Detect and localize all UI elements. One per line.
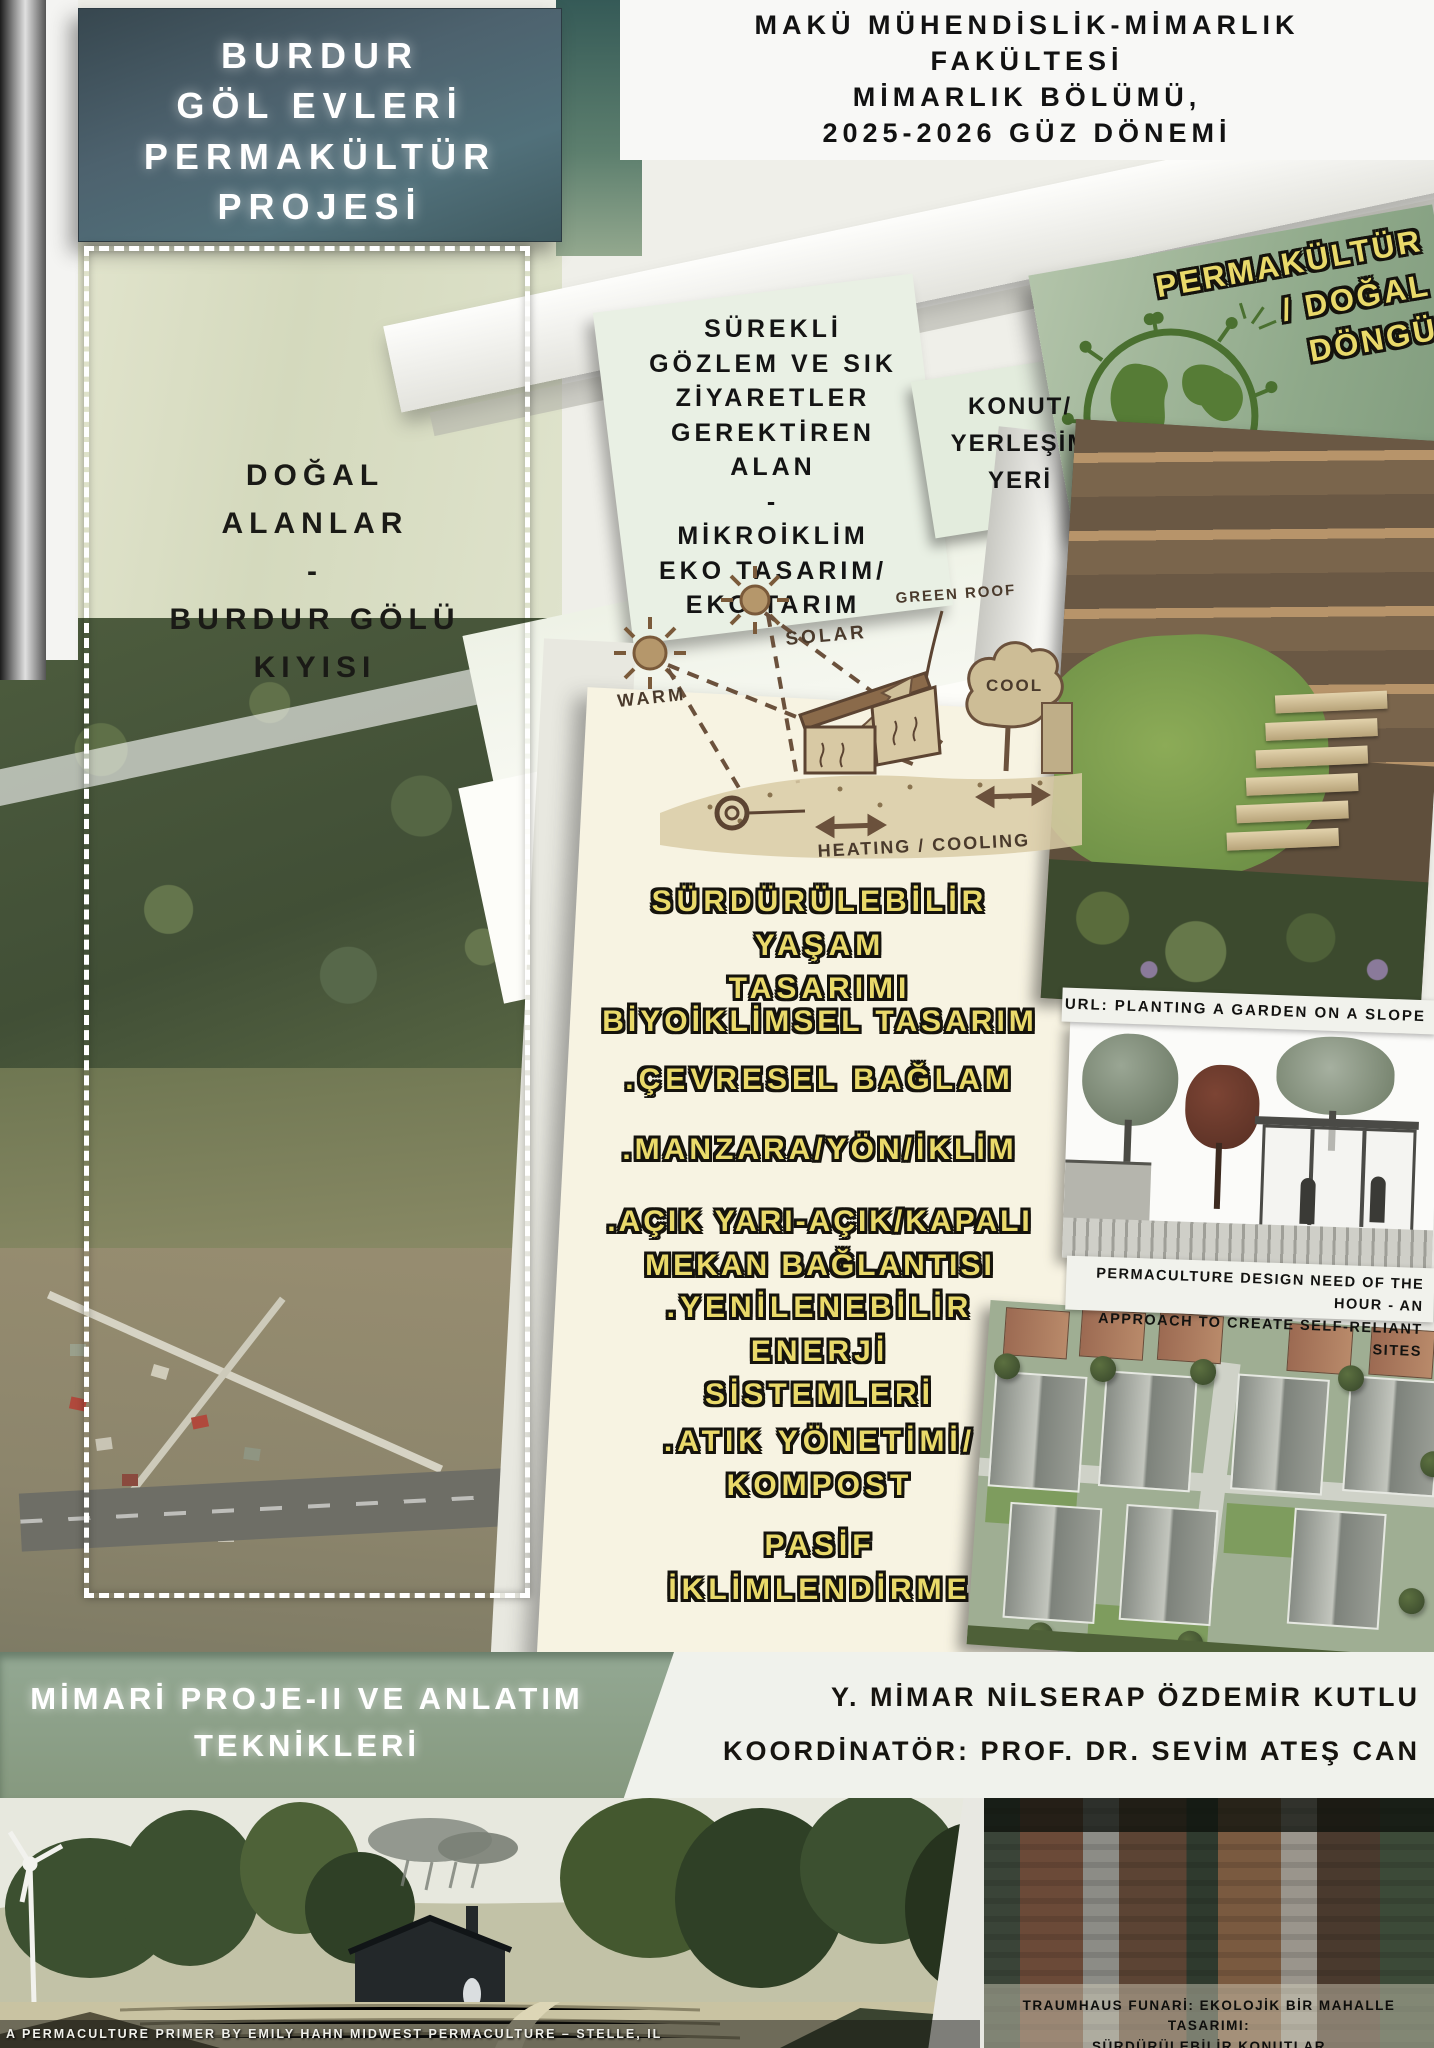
poster-root: BURDUR GÖL EVLERİ PERMAKÜLTÜR PROJESİ MA… [0,0,1434,2048]
course-title: MİMARİ PROJE-II VE ANLATIM TEKNİKLERİ [14,1676,600,1769]
masterplan-house [1230,1373,1330,1495]
principle-item: PASİF İKLİMLENDİRME [580,1524,1060,1611]
render-top-shadow [984,1798,1434,1832]
author-name: Y. MİMAR NİLSERAP ÖZDEMİR KUTLU [600,1682,1420,1713]
masterplan-house [1287,1508,1387,1630]
sketch-tree-red [1184,1064,1261,1151]
masterplan-yard [1224,1503,1297,1558]
caption-primer: A PERMACULTURE PRIMER BY EMILY HAHN MIDW… [6,2027,906,2041]
sketch-label-cool: COOL [986,676,1043,695]
landscape-render [0,1798,1010,2048]
principle-item: .MANZARA/YÖN/İKLİM [580,1128,1060,1172]
masterplan-house [1119,1504,1219,1626]
garden-photo [1041,419,1434,1021]
principle-item: SÜRDÜRÜLEBİLİR YAŞAM TASARIMI [580,880,1060,1011]
permaculture-sketch [1062,1022,1434,1271]
person-silhouette [1299,1178,1316,1224]
stairs [1256,746,1369,769]
sketch-tree [1275,1035,1396,1117]
pavilion-frame [1259,1124,1417,1235]
stairs [1246,773,1359,796]
stairs [1226,828,1339,851]
film-strip [0,0,46,680]
caption-text: PERMACULTURE DESIGN NEED OF THE HOUR - A… [1064,1256,1434,1365]
principle-item: .AÇIK YARI-AÇIK/KAPALI MEKAN BAĞLANTISI [570,1200,1070,1287]
principle-item: .YENİLENEBİLİR ENERJİ SİSTEMLERİ [580,1286,1060,1417]
coordinator-name: KOORDİNATÖR: PROF. DR. SEVİM ATEŞ CAN [580,1736,1420,1767]
masterplan-tree [1398,1587,1426,1615]
principle-item: .ATIK YÖNETİMİ/ KOMPOST [580,1420,1060,1507]
masterplan-tree [1189,1358,1217,1386]
sketch-tree-trunk [1214,1143,1222,1209]
sun-icon [721,566,789,634]
person-silhouette [1369,1176,1386,1222]
sketch-label-green-roof: GREEN ROOF [895,582,1017,607]
masterplan-house [1098,1370,1198,1492]
natural-areas-label: DOĞAL ALANLAR - BURDUR GÖLÜ KIYISI [150,452,480,692]
sketch-label-solar: SOLAR [785,622,868,650]
faculty-panel: MAKÜ MÜHENDİSLİK-MİMARLIK FAKÜLTESİ MİMA… [620,0,1434,160]
masterplan-house [1342,1375,1434,1497]
caption-self-reliant: PERMACULTURE DESIGN NEED OF THE HOUR - A… [1065,1256,1434,1323]
stairs [1236,800,1349,823]
gutter [46,0,78,660]
project-title: BURDUR GÖL EVLERİ PERMAKÜLTÜR PROJESİ [79,31,561,233]
footer-band: MİMARİ PROJE-II VE ANLATIM TEKNİKLERİ Y.… [0,1652,1434,1798]
principle-item: BİYOİKLİMSEL TASARIM [570,1000,1070,1044]
eco-house-sketch: SOLAR WARM GREEN ROOF COOL [590,545,1090,875]
faculty-info: MAKÜ MÜHENDİSLİK-MİMARLIK FAKÜLTESİ MİMA… [620,8,1434,152]
site-dashed-outline [84,246,530,1598]
title-panel: BURDUR GÖL EVLERİ PERMAKÜLTÜR PROJESİ [78,8,562,242]
sketch-label-warm: WARM [616,684,687,711]
sketch-tree [1081,1032,1180,1127]
principle-item: .ÇEVRESEL BAĞLAM [580,1058,1060,1102]
caption-traumhaus: TRAUMHAUS FUNARİ: EKOLOJİK BİR MAHALLE T… [986,1996,1432,2048]
